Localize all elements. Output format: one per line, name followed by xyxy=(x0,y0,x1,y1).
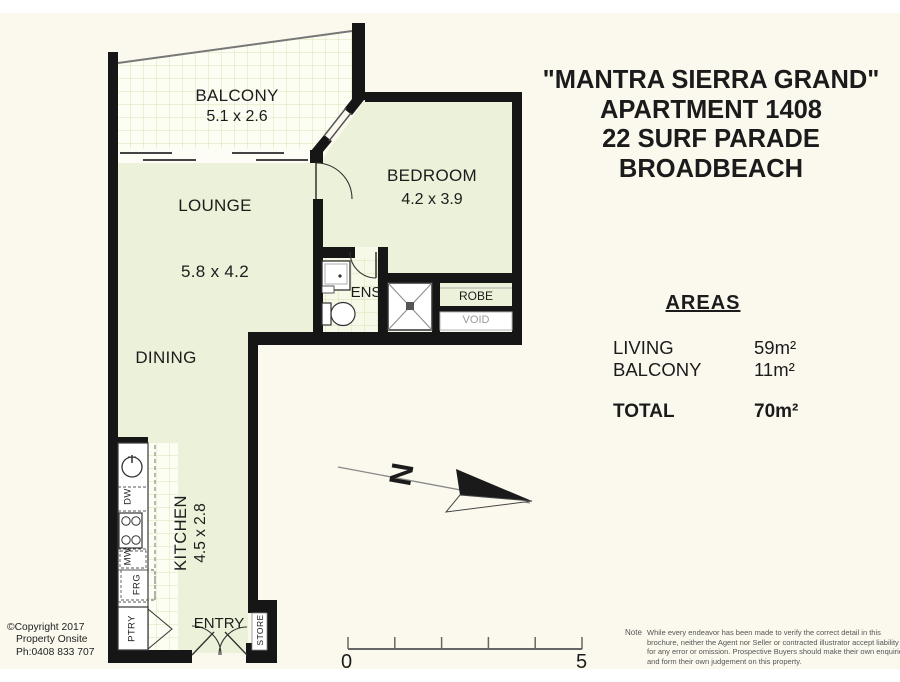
room-label-ens: ENS xyxy=(341,284,391,301)
floorplan-brochure: BALCONY 5.1 x 2.6 LOUNGE 5.8 x 4.2 DININ… xyxy=(0,0,900,682)
credit-line-3: Ph:0408 833 707 xyxy=(7,647,94,659)
appliance-label-microwave: MW xyxy=(123,542,134,572)
property-title: "MANTRA SIERRA GRAND" APARTMENT 1408 22 … xyxy=(518,66,900,184)
title-line-3: 22 SURF PARADE xyxy=(518,125,900,155)
appliance-label-fridge: FRG xyxy=(132,570,143,600)
shower xyxy=(388,283,432,330)
room-label-kitchen: KITCHEN 4.5 x 2.8 xyxy=(171,468,213,598)
toilet xyxy=(322,303,355,326)
room-label-robe: ROBE xyxy=(446,289,506,303)
area-row-value: 59m² xyxy=(754,337,796,359)
area-row-value: 11m² xyxy=(754,359,795,381)
areas-heading: AREAS xyxy=(613,292,793,315)
room-label-lounge: LOUNGE xyxy=(140,196,290,216)
title-line-2: APARTMENT 1408 xyxy=(518,96,900,126)
room-label-entry: ENTRY xyxy=(179,615,259,632)
scale-end: 5 xyxy=(576,651,587,674)
room-label-store: STORE xyxy=(255,610,265,650)
area-total-value: 70m² xyxy=(754,401,798,423)
credit-line-2: Property Onsite xyxy=(7,634,94,646)
room-label-bedroom: BEDROOM xyxy=(357,166,507,186)
scale-start: 0 xyxy=(341,651,352,674)
appliance-label-dishwasher: DW xyxy=(123,482,134,512)
room-label-void: VOID xyxy=(446,314,506,326)
copyright-credit: ©Copyright 2017 Property Onsite Ph:0408 … xyxy=(7,622,94,659)
balcony-sliding-doors xyxy=(118,149,313,163)
disclaimer-text: While every endeavor has been made to ve… xyxy=(647,628,900,666)
kitchen-dims: 4.5 x 2.8 xyxy=(191,468,211,598)
room-dims-balcony: 5.1 x 2.6 xyxy=(162,108,312,126)
credit-line-1: ©Copyright 2017 xyxy=(7,622,94,634)
area-row-label: BALCONY xyxy=(613,359,701,381)
kitchen-name: KITCHEN xyxy=(171,468,191,598)
title-line-1: "MANTRA SIERRA GRAND" xyxy=(518,66,900,96)
scale-bar xyxy=(348,637,582,649)
room-label-balcony: BALCONY xyxy=(162,86,312,106)
room-dims-bedroom: 4.2 x 3.9 xyxy=(357,191,507,209)
area-row-label: LIVING xyxy=(613,337,674,359)
room-label-dining: DINING xyxy=(91,348,241,368)
title-line-4: BROADBEACH xyxy=(518,155,900,185)
area-total-label: TOTAL xyxy=(613,401,675,423)
north-arrow xyxy=(338,467,532,512)
north-label: N xyxy=(382,460,421,495)
room-dims-lounge: 5.8 x 4.2 xyxy=(140,262,290,282)
room-label-pantry: PTRY xyxy=(127,614,138,644)
note-label: Note xyxy=(625,628,642,637)
